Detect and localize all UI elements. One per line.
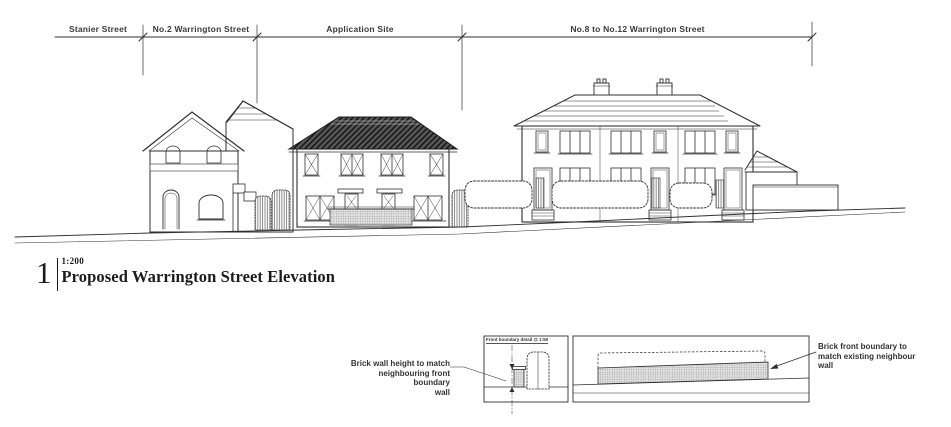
segment-label-stanier-street: Stanier Street (48, 24, 148, 34)
annotation-wall-height-line2: neighbouring front boundary (346, 369, 450, 388)
title-divider (57, 258, 58, 291)
annotation-brick-boundary: Brick front boundary to match existing n… (818, 342, 948, 371)
annotation-brick-boundary-line2: match existing neighbour (818, 352, 948, 362)
drawing-scale: 1:200 (62, 256, 336, 266)
building-no8-to-no12 (465, 79, 838, 222)
drawing-sheet: Stanier Street No.2 Warrington Street Ap… (0, 0, 951, 427)
detail-box-title: Front boundary detail @ 1:50 (486, 337, 548, 344)
annotation-brick-boundary-line3: wall (818, 361, 948, 371)
annotation-wall-height-line3: wall (346, 388, 450, 398)
drawing-number: 1 (36, 256, 52, 290)
elevation-drawing (0, 0, 951, 427)
segment-label-no2-warrington: No.2 Warrington Street (146, 24, 256, 34)
application-front-boundary-wall (328, 207, 414, 225)
drawing-title: Proposed Warrington Street Elevation (62, 267, 336, 287)
building-application-site (289, 117, 468, 227)
annotation-wall-height: Brick wall height to match neighbouring … (346, 359, 450, 397)
segment-label-no8-to-no12: No.8 to No.12 Warrington Street (463, 24, 812, 34)
annotation-wall-height-line1: Brick wall height to match (346, 359, 450, 369)
segment-label-application-site: Application Site (258, 24, 462, 34)
detail-box-front-boundary-section (450, 336, 568, 414)
title-block: 1 1:200 Proposed Warrington Street Eleva… (36, 256, 335, 291)
chimneys (593, 79, 673, 95)
side-extension (745, 151, 838, 210)
detail-box-front-boundary-elevation (573, 336, 816, 402)
annotation-brick-boundary-line1: Brick front boundary to (818, 342, 948, 352)
